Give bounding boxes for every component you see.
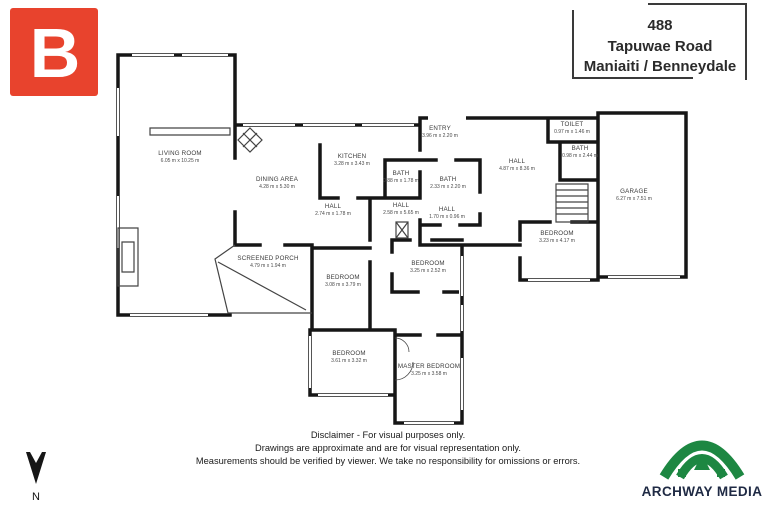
room-label: HALL [439,206,456,213]
room-dims: 2.74 m x 1.78 m [315,211,351,217]
room-dims: 2.33 m x 2.20 m [430,184,466,190]
wood-burner-icon [238,128,262,152]
archway-logo: ARCHWAY MEDIA [642,446,763,500]
staircase-icon [556,184,588,222]
room-dims: 4.79 m x 1.94 m [250,263,286,269]
room-dims: 3.08 m x 3.79 m [325,282,361,288]
room-dims: 0.88 m x 1.78 m [383,178,419,184]
room-label: MASTER BEDROOM [398,363,460,370]
room-label: GARAGE [620,188,648,195]
room-label: SCREENED PORCH [237,255,298,262]
window-seat [150,128,230,135]
room-label: ENTRY [429,125,451,132]
room-label: BEDROOM [332,350,365,357]
room-dims: 4.28 m x 5.30 m [259,184,295,190]
room-label: KITCHEN [338,153,367,160]
room-dims: 0.98 m x 2.44 m [562,153,598,159]
address-number: 488 [647,17,672,34]
room-label: LIVING ROOM [158,150,201,157]
room-label: BEDROOM [326,274,359,281]
address-locality: Maniaiti / Benneydale [584,58,737,75]
room-label: BATH [572,145,589,152]
room-label: HALL [325,203,342,210]
room-dims: 6.27 m x 7.51 m [616,196,652,202]
disclaimer: Disclaimer - For visual purposes only. D… [196,430,580,466]
room-label: BEDROOM [540,230,573,237]
room-label: HALL [509,158,526,165]
room-dims: 3.25 m x 2.52 m [410,268,446,274]
room-dims: 2.58 m x 5.65 m [383,210,419,216]
room-dims: 1.70 m x 0.96 m [429,214,465,220]
disclaimer-line-1: Disclaimer - For visual purposes only. [311,430,465,440]
room-label: BEDROOM [411,260,444,267]
room-dims: 3.96 m x 2.20 m [422,133,458,139]
north-arrow: N [26,452,46,503]
archway-media-wordmark: ARCHWAY MEDIA [642,484,763,499]
floor-plan-page: LIVING ROOM 6.05 m x 10.25 m DINING AREA… [0,0,768,512]
room-label: DINING AREA [256,176,299,183]
cylinder-icon [396,222,408,238]
room-label: TOILET [561,121,584,128]
floor-plan-canvas: LIVING ROOM 6.05 m x 10.25 m DINING AREA… [0,0,768,512]
b-logo-letter: B [30,14,81,92]
room-label: BATH [393,170,410,177]
b-logo: B [10,8,98,96]
room-label: HALL [393,202,410,209]
address-street: Tapuwae Road [608,38,713,55]
disclaimer-line-3: Measurements should be verified by viewe… [196,456,580,466]
room-dims: 3.25 m x 3.58 m [411,371,447,377]
room-dims: 6.05 m x 10.25 m [161,158,200,164]
address-box: 488 Tapuwae Road Maniaiti / Benneydale [573,4,746,80]
archway-foot-left [678,469,686,477]
archway-foot-right [717,469,725,477]
room-dims: 0.97 m x 1.46 m [554,129,590,135]
disclaimer-line-2: Drawings are approximate and are for vis… [255,443,521,453]
room-dims: 3.61 m x 3.32 m [331,358,367,364]
room-label: BATH [440,176,457,183]
room-dims: 4.87 m x 8.36 m [499,166,535,172]
room-dims: 3.23 m x 4.17 m [539,238,575,244]
north-label: N [32,491,40,503]
room-dims: 3.28 m x 3.43 m [334,161,370,167]
